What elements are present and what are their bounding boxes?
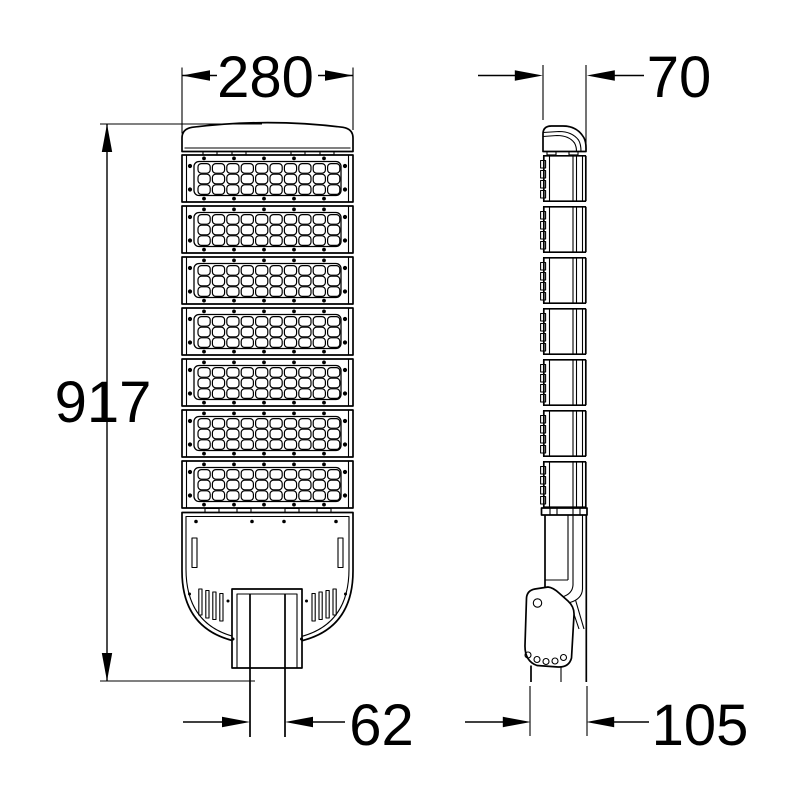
vent-slot-group-right	[312, 589, 336, 621]
side-view	[525, 126, 587, 682]
dimensions: 280 70 917 62	[55, 45, 749, 758]
led-module-array-side	[541, 156, 586, 507]
arrowhead-right	[587, 70, 615, 80]
arrowhead-left	[586, 717, 614, 727]
drawing-page: 280 70 917 62	[0, 0, 800, 800]
vent-slot-left	[192, 538, 197, 568]
arrowhead-down	[102, 653, 112, 681]
dim-label-front-width: 280	[217, 45, 314, 110]
lamp-top-cap-side	[543, 126, 586, 155]
arrowhead-left	[515, 70, 543, 80]
dim-label-front-mount-width: 62	[349, 693, 414, 758]
dimension-side-mount-depth: 105	[465, 686, 748, 758]
vent-slot-group-left	[199, 589, 223, 621]
dimension-side-width: 70	[478, 45, 711, 150]
lamp-top-cap	[182, 123, 353, 155]
front-view	[182, 123, 353, 737]
dimension-front-width: 280	[182, 45, 353, 134]
pole-mount-front	[227, 589, 309, 737]
dimension-front-mount-width: 62	[183, 693, 414, 758]
arrowhead-left	[285, 717, 313, 727]
arrowhead-right	[325, 70, 353, 80]
vent-slot-right	[338, 538, 343, 568]
arrowhead-right	[222, 717, 250, 727]
pole-mount-bracket-side	[525, 587, 574, 682]
drawing-canvas: 280 70 917 62	[0, 0, 800, 800]
dim-label-front-height: 917	[55, 370, 152, 435]
arrowhead-up	[102, 124, 112, 152]
led-module-array-front	[182, 155, 353, 508]
dim-label-side-mount-depth: 105	[652, 693, 749, 758]
arrowhead-right	[503, 717, 531, 727]
dimension-front-height: 917	[55, 124, 262, 681]
dim-label-side-width: 70	[647, 45, 712, 110]
arrowhead-left	[182, 70, 210, 80]
